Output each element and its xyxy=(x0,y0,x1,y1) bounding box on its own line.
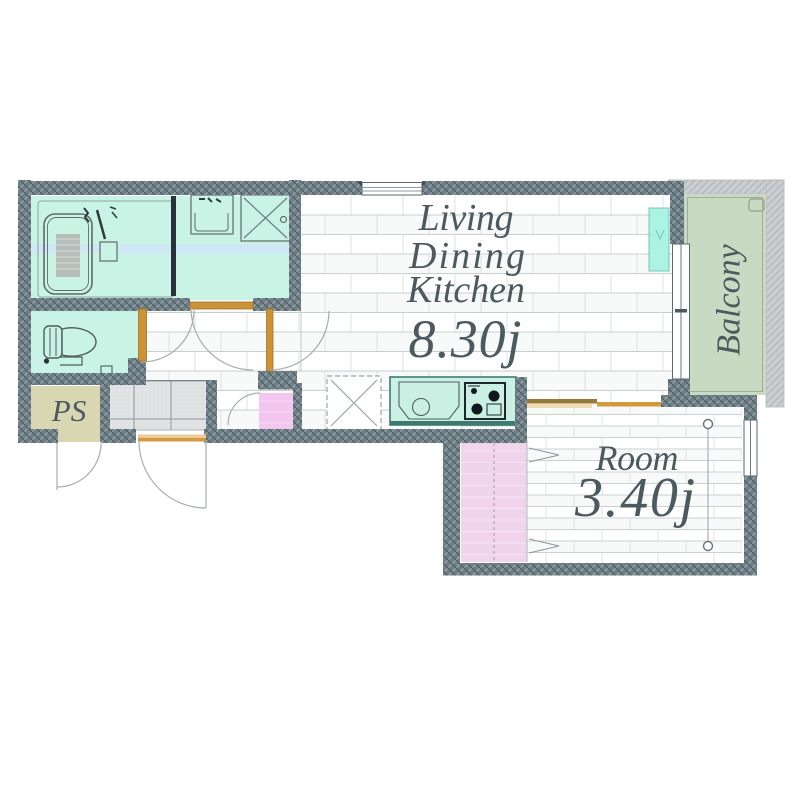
svg-text:Living: Living xyxy=(418,197,514,239)
svg-text:Balcony: Balcony xyxy=(711,243,748,355)
svg-text:3.40j: 3.40j xyxy=(574,467,695,529)
svg-text:Kitchen: Kitchen xyxy=(406,269,525,311)
svg-text:8.30j: 8.30j xyxy=(409,309,522,369)
svg-text:PS: PS xyxy=(51,393,86,428)
